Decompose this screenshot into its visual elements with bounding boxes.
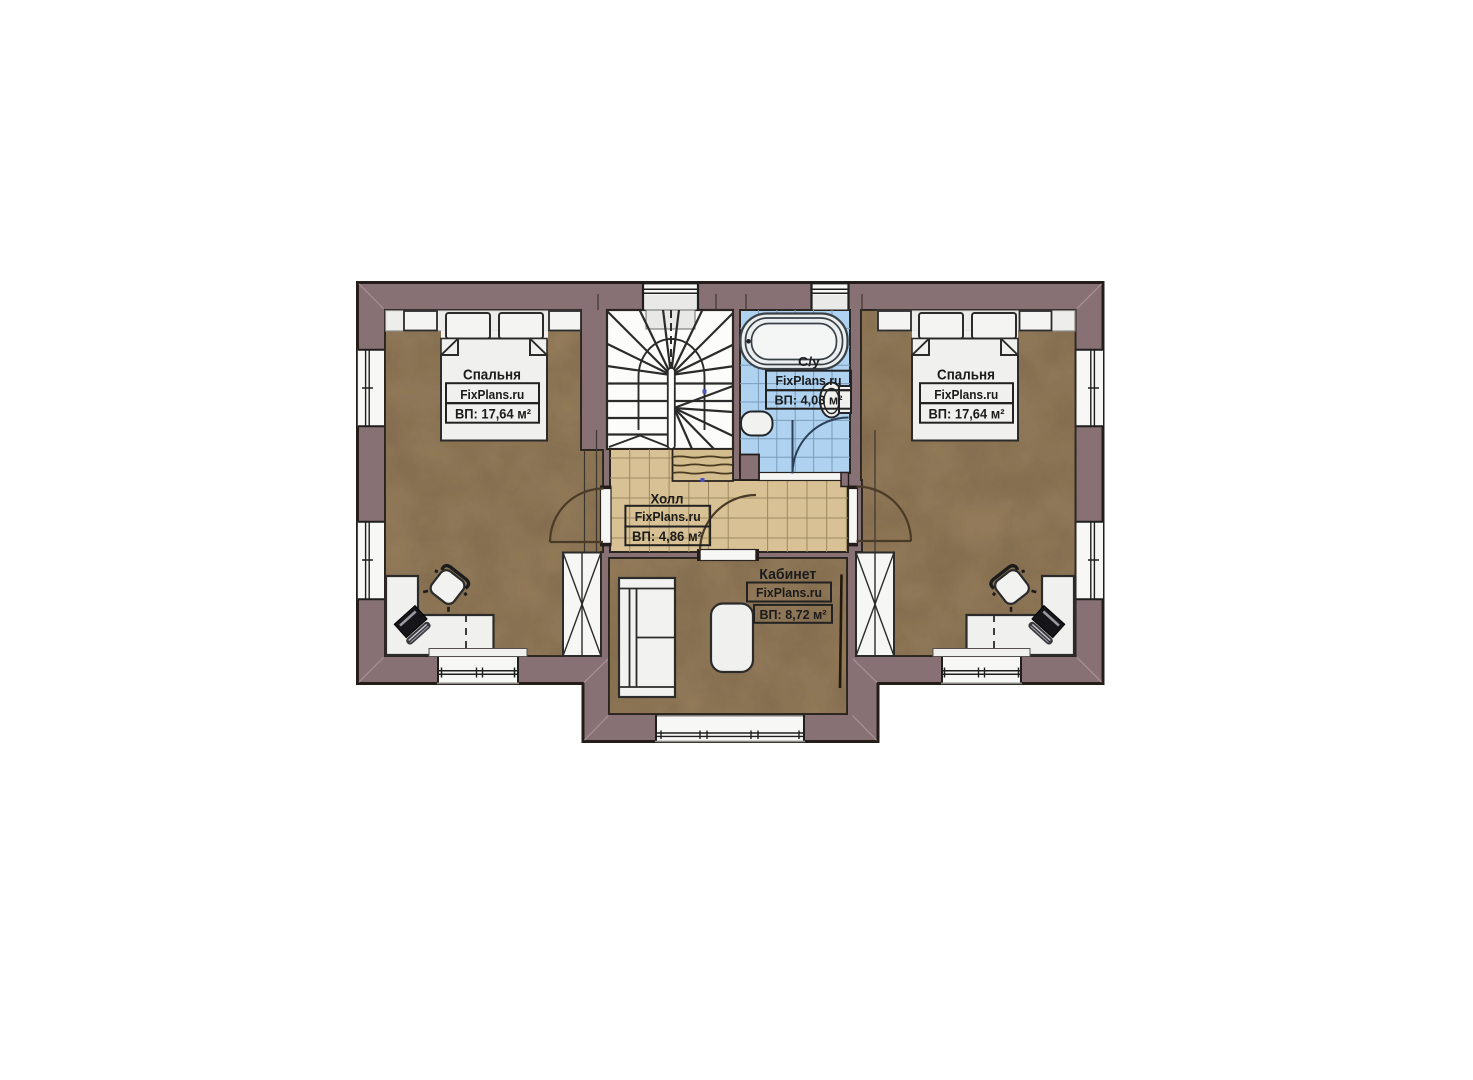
svg-text:FixPlans.ru: FixPlans.ru	[635, 509, 701, 524]
svg-text:ВП: 4,03 м²: ВП: 4,03 м²	[775, 392, 844, 407]
svg-text:ВП: 8,72 м²: ВП: 8,72 м²	[760, 607, 828, 622]
svg-text:Спальня: Спальня	[937, 367, 995, 384]
svg-text:FixPlans.ru: FixPlans.ru	[756, 585, 822, 600]
svg-text:Холл: Холл	[651, 491, 684, 507]
svg-text:Спальня: Спальня	[463, 367, 521, 384]
svg-text:FixPlans.ru: FixPlans.ru	[934, 387, 998, 402]
svg-text:Кабинет: Кабинет	[759, 566, 816, 583]
svg-text:FixPlans.ru: FixPlans.ru	[776, 373, 842, 388]
svg-text:ВП: 4,86 м²: ВП: 4,86 м²	[632, 529, 702, 544]
svg-text:FixPlans.ru: FixPlans.ru	[460, 387, 524, 402]
svg-text:ВП: 17,64 м²: ВП: 17,64 м²	[455, 407, 531, 422]
svg-text:С/у: С/у	[798, 355, 820, 369]
svg-text:ВП: 17,64 м²: ВП: 17,64 м²	[929, 407, 1005, 422]
